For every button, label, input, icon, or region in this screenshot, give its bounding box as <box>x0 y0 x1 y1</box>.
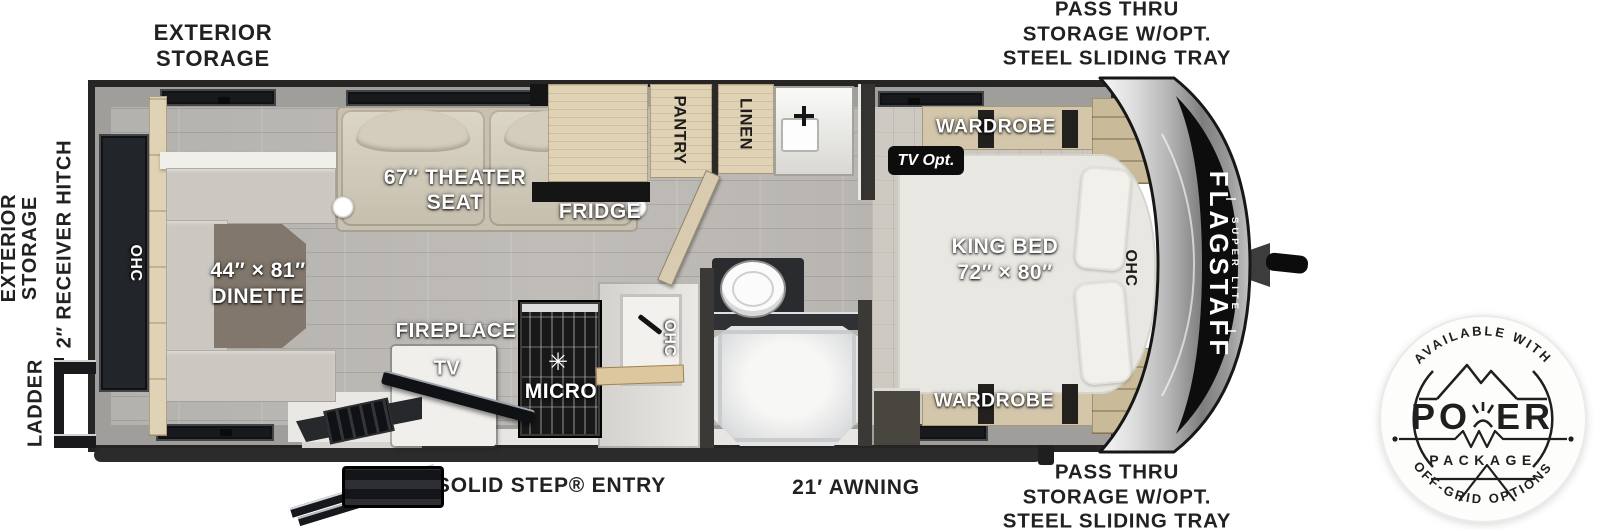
dinette-label: 44″ × 81″ DINETTE <box>210 258 305 310</box>
king-bed-label: KING BED 72″ × 80″ <box>952 234 1059 286</box>
pass-thru-bottom-line1: PASS THRU <box>1003 460 1232 485</box>
pantry-label: PANTRY <box>670 96 689 165</box>
fridge-label: FRIDGE <box>559 200 641 224</box>
dinette-name: DINETTE <box>210 284 305 310</box>
dinette-bottom-window <box>156 424 274 441</box>
solid-step-entry-label: SOLID STEP® ENTRY <box>436 474 666 498</box>
micro-label: MICRO <box>525 380 598 404</box>
bath-faucet-bar <box>794 114 814 118</box>
king-bed-line1: KING BED <box>952 234 1059 260</box>
exterior-storage-side-label: EXTERIOR STORAGE <box>0 194 41 303</box>
wardrobe-top-label: WARDROBE <box>936 116 1056 139</box>
divider-dot <box>1392 436 1397 441</box>
toilet-seat <box>732 271 774 307</box>
tv-label: TV <box>434 358 461 381</box>
cupholder <box>332 196 354 218</box>
pass-thru-top-label: PASS THRU STORAGE W/OPT. STEEL SLIDING T… <box>1003 0 1232 71</box>
brand-logo: FLAGSTAFF SUPER LITE <box>1204 171 1240 360</box>
divider-dot <box>1568 436 1573 441</box>
burner-icon: ✳ <box>548 348 568 377</box>
toilet <box>722 262 784 316</box>
tv-opt-badge: TV Opt. <box>888 146 964 175</box>
dinette-bench-bottom <box>166 350 336 402</box>
badge-package-text: PACKAGE <box>1429 452 1536 468</box>
rear-cabinet-strip <box>149 96 167 436</box>
king-bed-line2: 72″ × 80″ <box>952 260 1059 286</box>
exterior-storage-top-label: EXTERIOR STORAGE <box>154 20 273 72</box>
exterior-storage-side-line1: EXTERIOR <box>0 194 20 303</box>
exterior-storage-top-line2: STORAGE <box>154 46 273 72</box>
cutting-board <box>596 364 685 385</box>
fridge-front-band <box>532 182 650 202</box>
pantry-linen-divider <box>712 84 718 180</box>
pass-thru-top-line1: PASS THRU <box>1003 0 1232 22</box>
awning-bracket <box>1038 445 1054 465</box>
linen-label: LINEN <box>736 98 755 150</box>
bath-wall-left <box>700 268 714 448</box>
receiver-hitch-label: 2″ RECEIVER HITCH <box>54 140 77 349</box>
dinette-bench-top <box>166 168 336 224</box>
bedroom-top-window <box>878 91 984 107</box>
floorplan-page: EXTERIOR STORAGE PASS THRU STORAGE W/OPT… <box>0 0 1600 530</box>
theater-seat-label: 67″ THEATER SEAT <box>384 165 526 215</box>
bath-bedroom-wall-top <box>858 84 875 200</box>
fridge-cabinet <box>548 84 648 182</box>
vent-nub <box>218 97 230 104</box>
pass-thru-top-line3: STEEL SLIDING TRAY <box>1003 46 1232 71</box>
range-control-bar <box>522 304 598 312</box>
bath-sink <box>781 118 819 152</box>
shower-pan <box>714 326 860 446</box>
awning-rail <box>94 448 1042 462</box>
wardrobe-divider <box>1062 384 1078 424</box>
bath-wall-right <box>858 300 872 446</box>
hitch-jack <box>1265 252 1309 274</box>
kitchen-ohc-label: OHC <box>660 319 678 356</box>
vent-nub <box>220 429 232 436</box>
pass-thru-bottom-line3: STEEL SLIDING TRAY <box>1003 509 1232 530</box>
ladder-label: LADDER <box>25 359 48 447</box>
wardrobe-divider <box>1062 110 1078 148</box>
vent-nub <box>908 98 920 105</box>
bedroom-molding <box>874 388 920 445</box>
pass-thru-bottom-label: PASS THRU STORAGE W/OPT. STEEL SLIDING T… <box>1003 460 1232 530</box>
theater-window <box>346 90 544 106</box>
tv-opt-label: TV Opt. <box>898 152 955 170</box>
ladder-arm <box>54 360 96 374</box>
rear-ohc-shelf <box>160 152 336 169</box>
exterior-storage-side-line2: STORAGE <box>20 194 41 303</box>
ladder-arm <box>54 434 96 448</box>
theater-line1: 67″ THEATER <box>384 165 526 190</box>
pass-thru-top-line2: STORAGE W/OPT. <box>1003 22 1232 47</box>
bath-vanity <box>774 86 854 176</box>
brand-sub: SUPER LITE <box>1229 217 1240 313</box>
exterior-storage-top-line1: EXTERIOR <box>154 20 273 46</box>
power-package-badge: AVAILABLE WITH OFF-GRID OPTIONS PO ER PA… <box>1376 312 1590 526</box>
entry-step <box>342 466 444 508</box>
front-ohc-label: OHC <box>1121 249 1139 286</box>
badge-power-right: ER <box>1496 396 1554 437</box>
rear-ohc-label: OHC <box>126 244 144 281</box>
dinette-size: 44″ × 81″ <box>210 258 305 284</box>
wardrobe-bottom-label: WARDROBE <box>934 390 1054 413</box>
awning-label: 21′ AWNING <box>792 476 920 500</box>
theater-line2: SEAT <box>384 190 526 215</box>
pass-thru-bottom-line2: STORAGE W/OPT. <box>1003 485 1232 510</box>
fireplace-label: FIREPLACE <box>396 319 517 343</box>
